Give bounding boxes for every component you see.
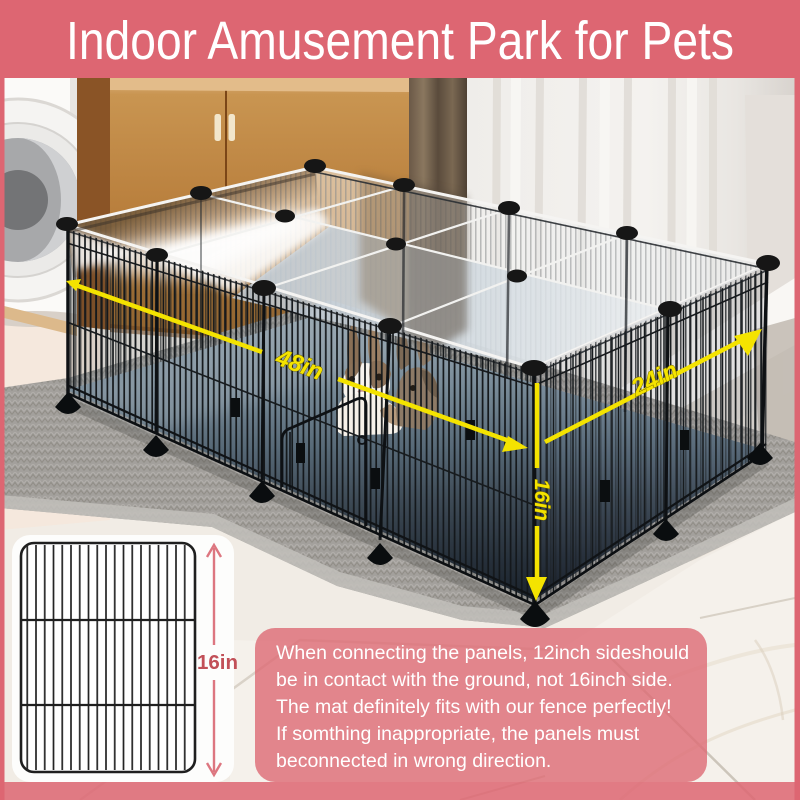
svg-text:16in: 16in	[197, 651, 238, 674]
svg-text:Indoor Amusement Park for Pets: Indoor Amusement Park for Pets	[66, 11, 734, 71]
svg-text:If somthing inappropriate, the: If somthing inappropriate, the panels mu…	[276, 723, 640, 745]
svg-text:16in: 16in	[530, 479, 553, 521]
svg-text:beconnected in wrong direction: beconnected in wrong direction.	[276, 750, 551, 772]
svg-text:be in contact with the ground,: be in contact with the ground, not 16inc…	[276, 669, 673, 691]
svg-text:The mat definitely fits with o: The mat definitely fits with our fence p…	[276, 696, 672, 718]
svg-text:When connecting the panels, 12: When connecting the panels, 12inch sides…	[276, 642, 689, 664]
